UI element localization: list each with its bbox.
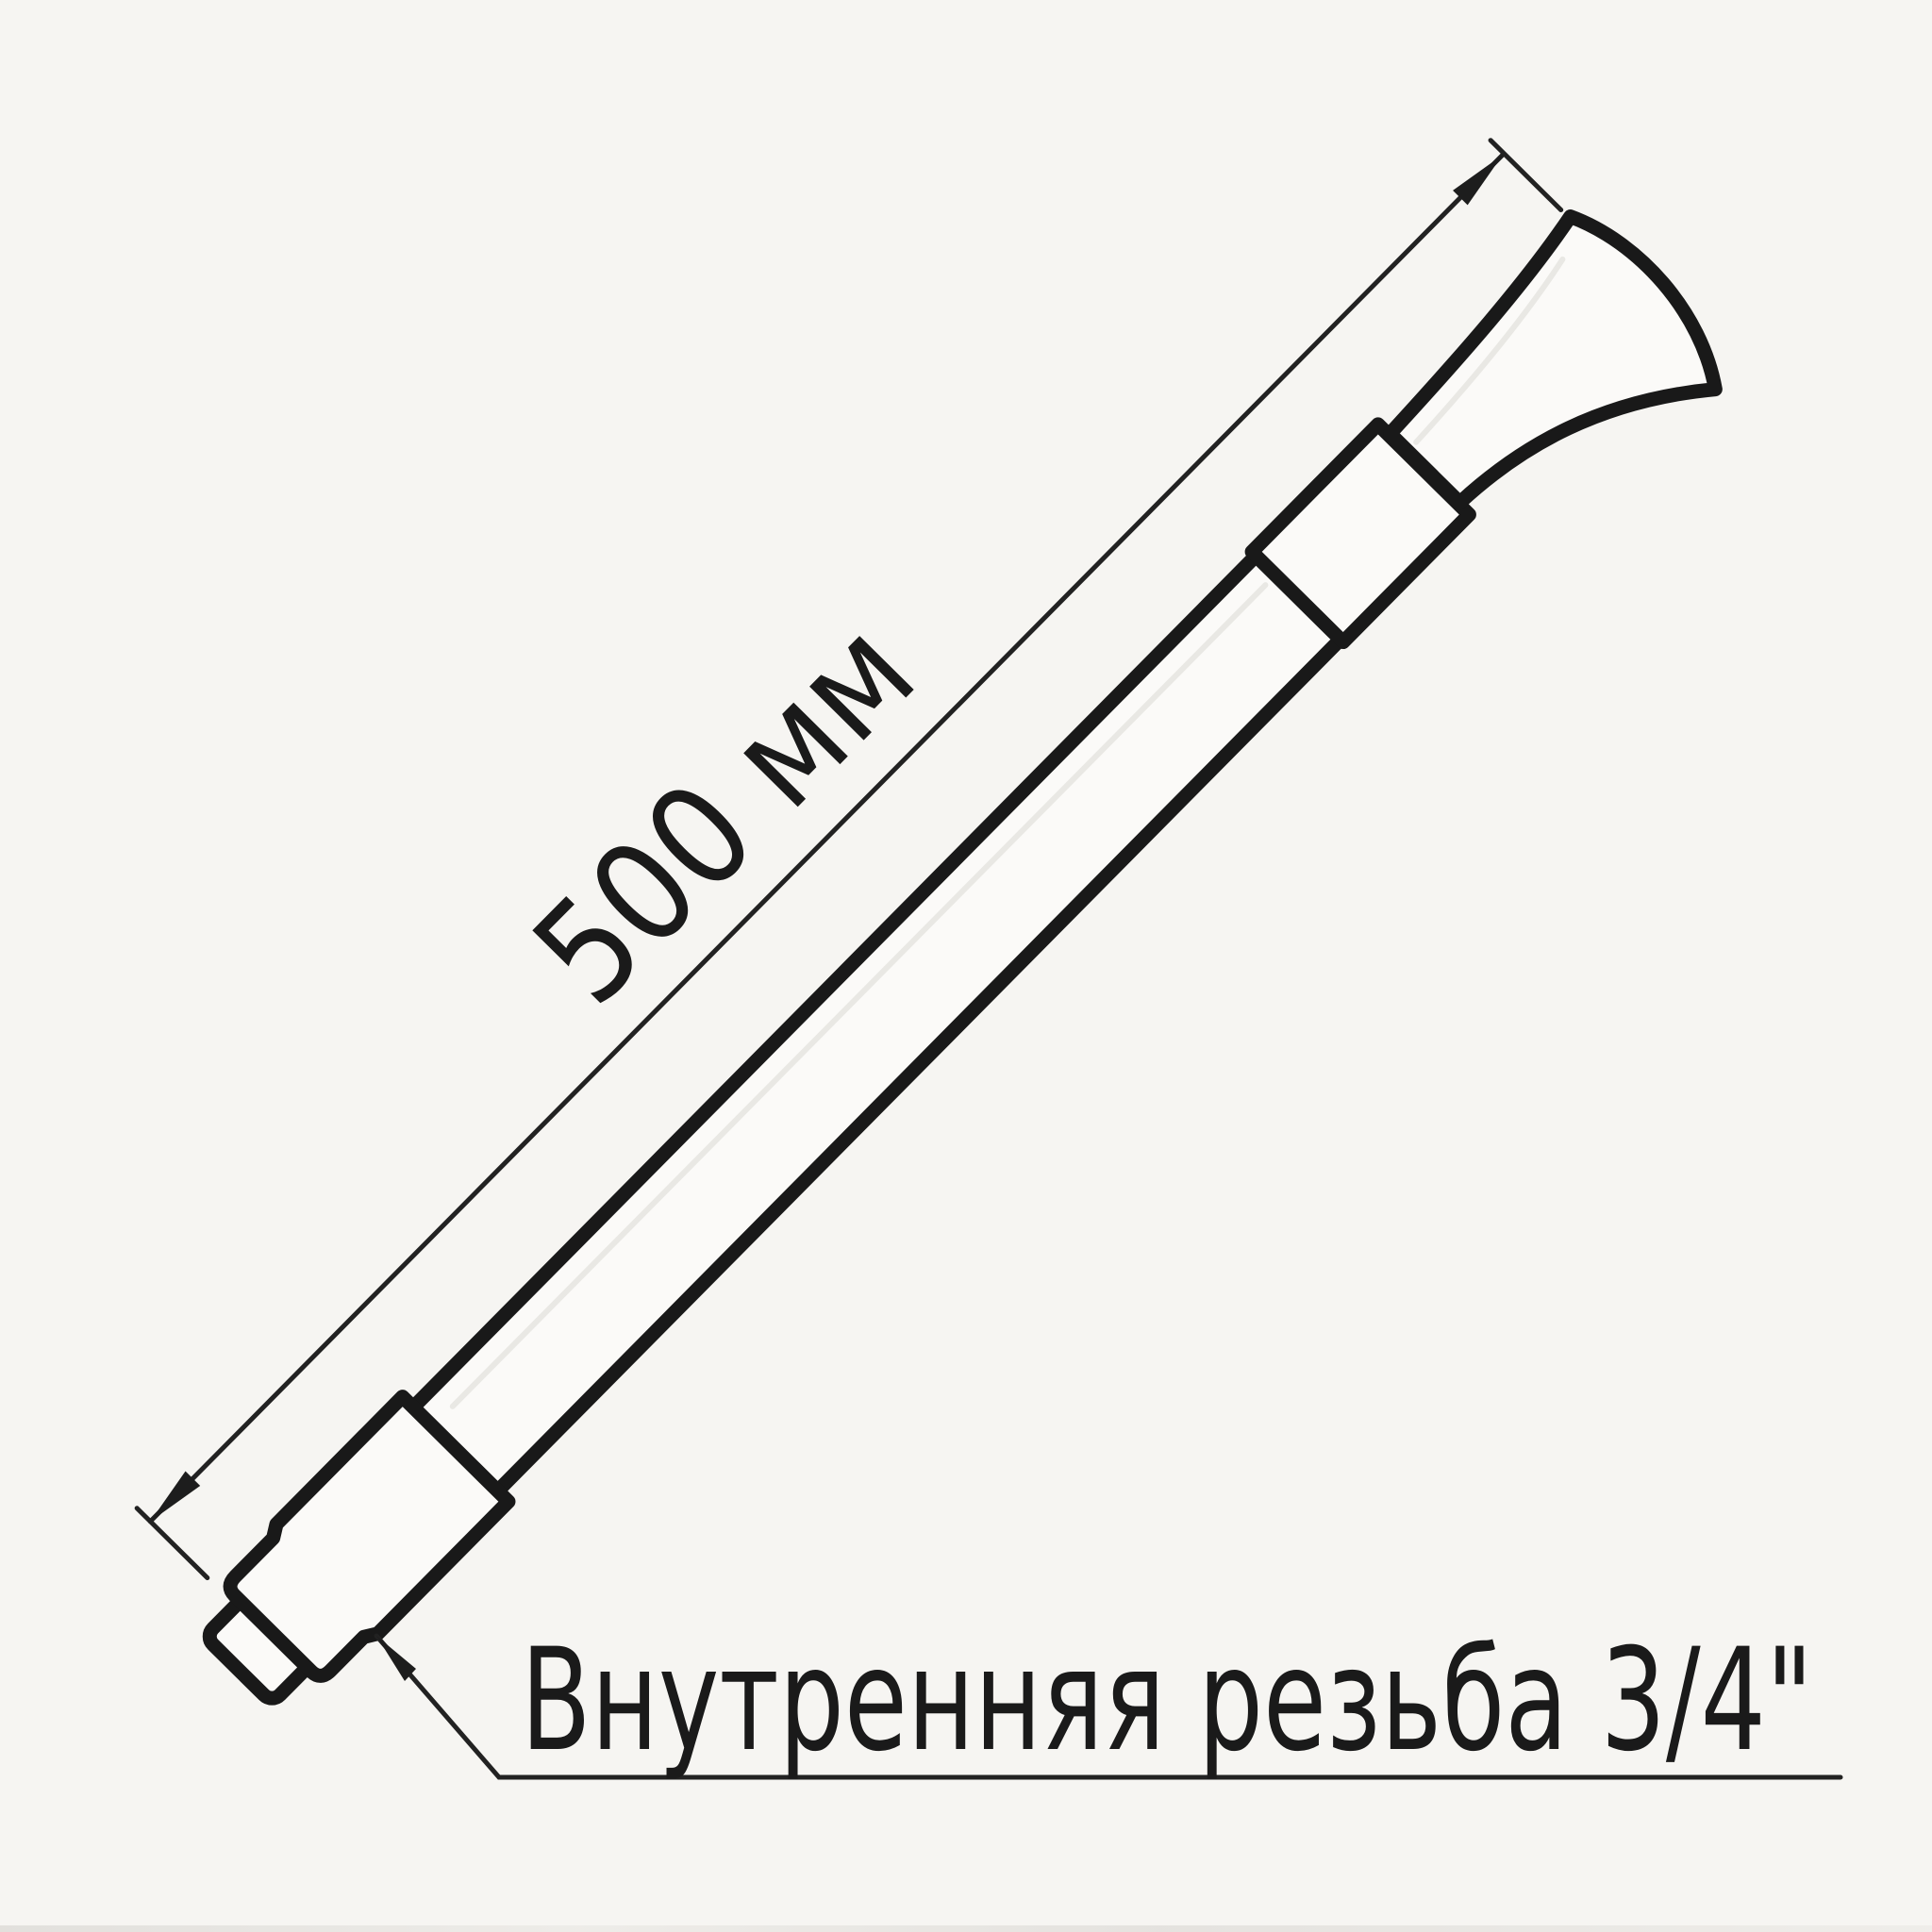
dimension-arrowhead-top bbox=[1453, 147, 1510, 205]
extension-line-bottom bbox=[137, 1508, 208, 1578]
scan-edge-artifact bbox=[0, 1925, 1932, 1932]
extension-line-top bbox=[1491, 141, 1561, 210]
dimension-arrowhead-bottom bbox=[143, 1472, 201, 1529]
shower-hose-drawing: 500 мм Внутренняя резьба 3/4" bbox=[0, 0, 1932, 1932]
thread-annotation-label: Внутренняя резьба 3/4" bbox=[521, 1619, 1813, 1783]
hose-assembly-group: 500 мм bbox=[0, 18, 1743, 1774]
technical-drawing-page: 500 мм Внутренняя резьба 3/4" bbox=[0, 0, 1932, 1932]
leader-arrowhead bbox=[376, 1636, 416, 1681]
dimension-line bbox=[150, 155, 1503, 1522]
